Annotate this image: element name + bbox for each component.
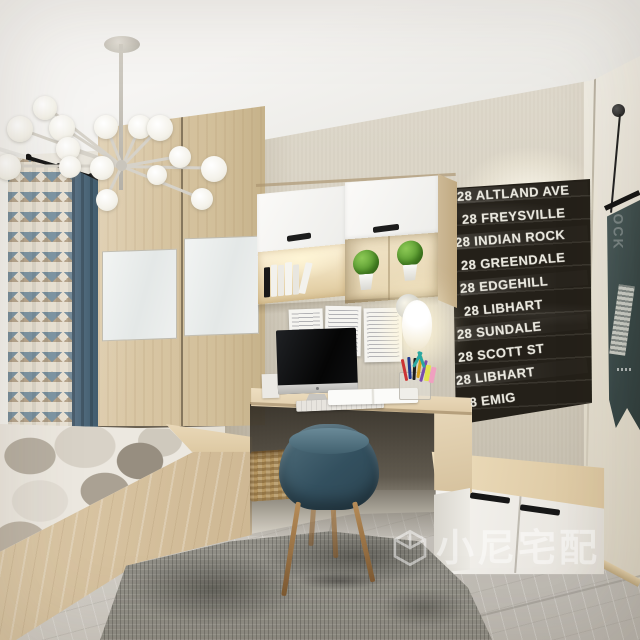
open-shelf-books [258, 244, 345, 304]
book [278, 265, 284, 297]
cabinet-handle [373, 224, 399, 233]
cube-logo-icon [390, 528, 430, 568]
banner-illustration [609, 284, 635, 356]
chalk-line: 28 GREENDALE [460, 248, 588, 273]
globe-bulb [147, 115, 173, 141]
globe-bulb [94, 115, 118, 139]
globe-bulb [96, 189, 118, 211]
monitor-logo-icon [316, 387, 319, 390]
chair-seat-rim [289, 428, 369, 454]
watermark: 小尼宅配 [390, 528, 600, 568]
desk-chair [279, 424, 379, 510]
chandelier [0, 30, 250, 220]
watermark-text: 小尼宅配 [436, 529, 600, 567]
wall-lamp [402, 300, 432, 350]
globe-bulb [7, 116, 33, 142]
plant-pot [401, 264, 419, 281]
globe-bulb [33, 96, 57, 120]
wardrobe-mirror-right [184, 236, 259, 337]
cabinet-handle [520, 504, 560, 516]
globe-bulb [169, 146, 191, 168]
chalkboard-sign: 28 ALTLAND AVE 28 FREYSVILLE 28 INDIAN R… [451, 179, 592, 425]
book [264, 267, 270, 298]
globe-bulb [147, 165, 167, 185]
leaning-book [298, 262, 312, 294]
room-render: 28 ALTLAND AVE 28 FREYSVILLE 28 INDIAN R… [0, 0, 640, 640]
banner-marks [617, 368, 631, 371]
globe-bulb [59, 156, 81, 178]
plant-foliage [353, 249, 379, 277]
pen-cup [399, 372, 431, 400]
plant-foliage [397, 240, 423, 268]
wall-cabinet-door-front [345, 176, 438, 241]
chair-shadow [282, 570, 397, 592]
book [285, 262, 292, 296]
chalk-line: 28 EDGEHILL [459, 270, 588, 296]
cabinet-handle [287, 232, 311, 242]
banner-text: OCK [611, 213, 627, 250]
chandelier-hub [116, 160, 127, 171]
globe-bulb [0, 154, 21, 180]
chalkboard-lines: 28 ALTLAND AVE 28 FREYSVILLE 28 INDIAN R… [455, 189, 588, 411]
globe-bulb [201, 156, 227, 182]
wardrobe-mirror-left [102, 249, 177, 342]
chalk-line: 28 INDIAN ROCK [454, 225, 588, 250]
cabinet-handle [470, 492, 510, 504]
chalk-line: 28 FREYSVILLE [462, 204, 589, 227]
globe-bulb [90, 156, 114, 180]
pennant-banner: OCK [606, 200, 640, 435]
book [271, 264, 277, 297]
monitor [276, 328, 358, 395]
globe-bulb [191, 188, 213, 210]
